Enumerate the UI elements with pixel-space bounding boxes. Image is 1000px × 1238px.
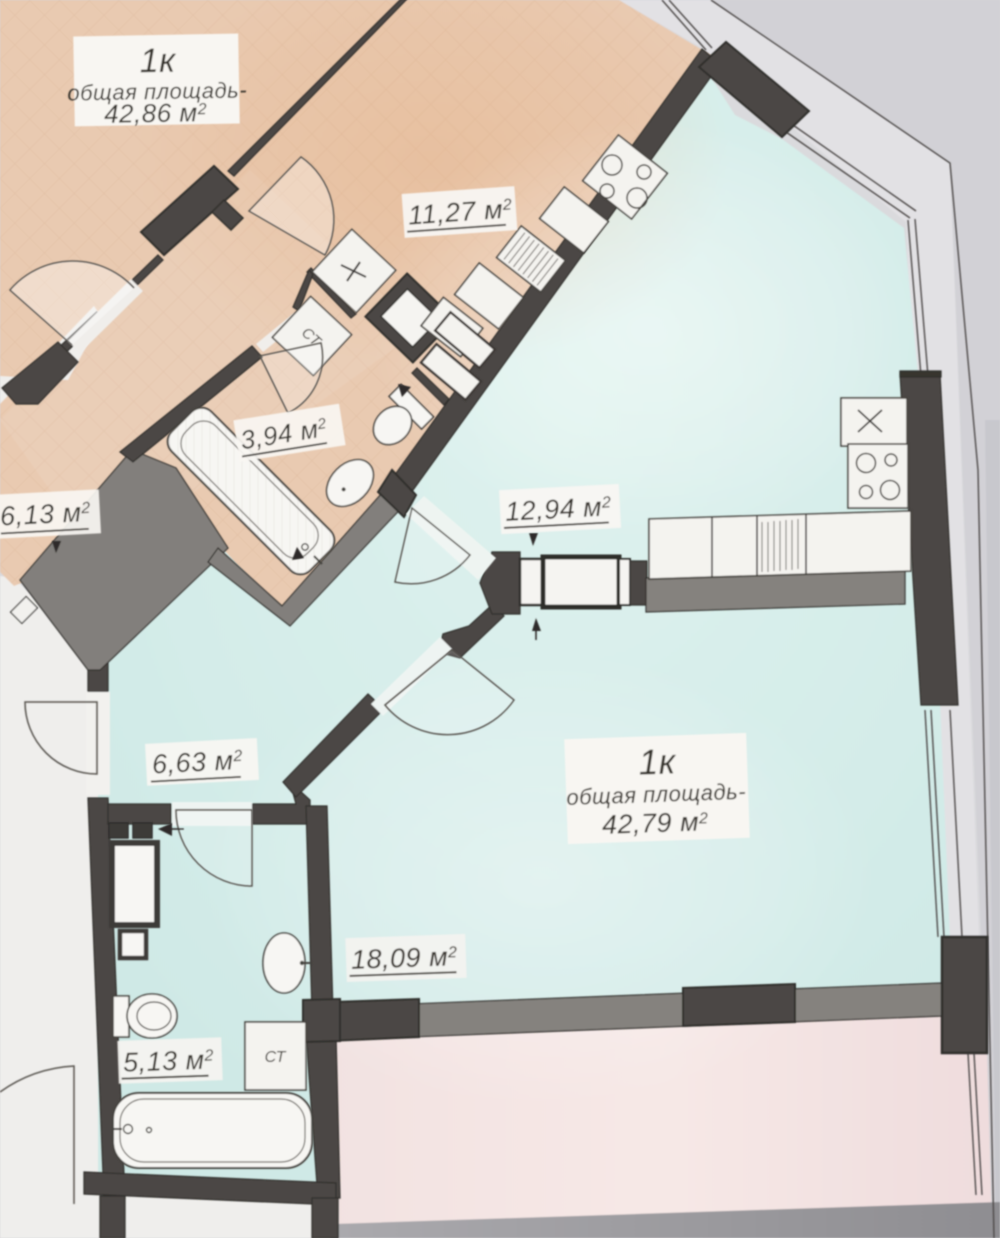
svg-text:42,86 м2: 42,86 м2 xyxy=(104,97,208,129)
svg-text:5,13 м2: 5,13 м2 xyxy=(123,1044,215,1077)
svg-text:СТ: СТ xyxy=(265,1049,287,1066)
svg-text:6,63 м2: 6,63 м2 xyxy=(151,745,243,780)
svg-text:12,94 м2: 12,94 м2 xyxy=(504,491,612,527)
svg-text:1к: 1к xyxy=(139,42,177,81)
svg-text:1к: 1к xyxy=(638,742,677,782)
svg-text:6,13 м2: 6,13 м2 xyxy=(0,497,92,532)
svg-text:18,09 м2: 18,09 м2 xyxy=(351,941,458,975)
svg-text:42,79 м2: 42,79 м2 xyxy=(601,806,708,840)
